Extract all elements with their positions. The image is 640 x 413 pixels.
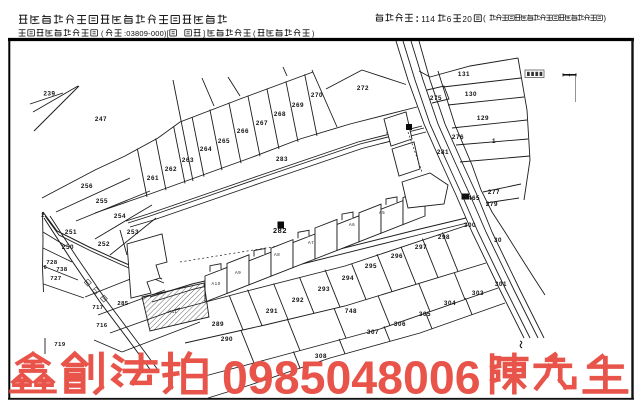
svg-text:748: 748 (345, 308, 357, 315)
svg-text:285: 285 (117, 301, 129, 307)
svg-text:0: 0 (44, 265, 47, 271)
svg-text:A6: A6 (349, 222, 355, 227)
svg-text:268: 268 (274, 111, 286, 118)
svg-text:279: 279 (486, 201, 498, 208)
svg-text:728: 728 (46, 260, 58, 266)
svg-text:247: 247 (95, 116, 107, 123)
svg-text:275: 275 (430, 95, 442, 102)
svg-text:253: 253 (127, 229, 139, 236)
svg-text:20: 20 (462, 15, 472, 24)
svg-text:265: 265 (218, 138, 230, 145)
svg-text:255: 255 (96, 198, 108, 205)
svg-text:301: 301 (495, 281, 507, 288)
svg-text:293: 293 (318, 286, 330, 293)
svg-text:282: 282 (273, 226, 287, 235)
svg-text:130: 130 (465, 91, 477, 98)
svg-text:303: 303 (472, 290, 484, 297)
svg-text:295: 295 (365, 263, 377, 270)
svg-text:269: 269 (292, 102, 304, 109)
svg-text:292: 292 (292, 297, 304, 304)
svg-text:254: 254 (114, 213, 126, 220)
svg-text:267: 267 (256, 120, 268, 127)
svg-text:]: ] (203, 29, 206, 38)
svg-text:727: 727 (50, 276, 61, 282)
svg-text:262: 262 (165, 166, 177, 173)
svg-text:465: 465 (468, 195, 480, 202)
svg-text:A8: A8 (274, 252, 280, 257)
svg-text:306: 306 (394, 321, 406, 328)
svg-text:(: ( (483, 14, 486, 23)
svg-text:263: 263 (182, 157, 194, 164)
svg-text:114: 114 (421, 15, 435, 24)
svg-text:256: 256 (81, 183, 93, 190)
svg-text:252: 252 (98, 241, 110, 248)
svg-text:A5: A5 (379, 210, 385, 215)
svg-text:0985048006: 0985048006 (222, 352, 481, 404)
svg-text::03809-000)[: :03809-000)[ (124, 29, 170, 38)
svg-text:A9: A9 (235, 270, 241, 275)
svg-text:290: 290 (221, 336, 233, 343)
svg-text:(: ( (101, 29, 104, 38)
svg-text:296: 296 (391, 253, 403, 260)
svg-text:738: 738 (56, 267, 68, 273)
svg-text:305: 305 (419, 311, 431, 318)
svg-text:6: 6 (447, 15, 452, 24)
svg-text:266: 266 (237, 128, 249, 135)
svg-text:304: 304 (444, 300, 456, 307)
svg-text:270: 270 (311, 92, 323, 99)
svg-text:277: 277 (488, 189, 500, 196)
svg-text:294: 294 (342, 275, 354, 282)
svg-text:297: 297 (415, 244, 427, 251)
svg-text:): ) (312, 29, 315, 38)
svg-text:264: 264 (200, 146, 212, 153)
svg-text:1: 1 (492, 138, 496, 145)
svg-text:298: 298 (438, 234, 450, 241)
svg-text:129: 129 (477, 115, 489, 122)
svg-text:239: 239 (44, 91, 56, 98)
svg-text:A10: A10 (211, 281, 220, 286)
svg-text:276: 276 (452, 134, 464, 141)
svg-text:719: 719 (54, 342, 66, 348)
svg-text:716: 716 (96, 323, 108, 329)
svg-text:251: 251 (65, 229, 77, 236)
svg-text:291: 291 (266, 308, 278, 315)
svg-text:283: 283 (276, 156, 288, 163)
svg-text:261: 261 (147, 175, 159, 182)
svg-text:281: 281 (437, 149, 449, 156)
svg-text:289: 289 (212, 321, 224, 328)
svg-text:131: 131 (458, 71, 470, 78)
svg-text:717: 717 (92, 305, 103, 311)
svg-text:(: ( (253, 29, 256, 38)
svg-text:A7: A7 (308, 240, 314, 245)
svg-text:): ) (603, 14, 606, 23)
svg-text:307: 307 (367, 329, 379, 336)
svg-text:272: 272 (357, 85, 369, 92)
